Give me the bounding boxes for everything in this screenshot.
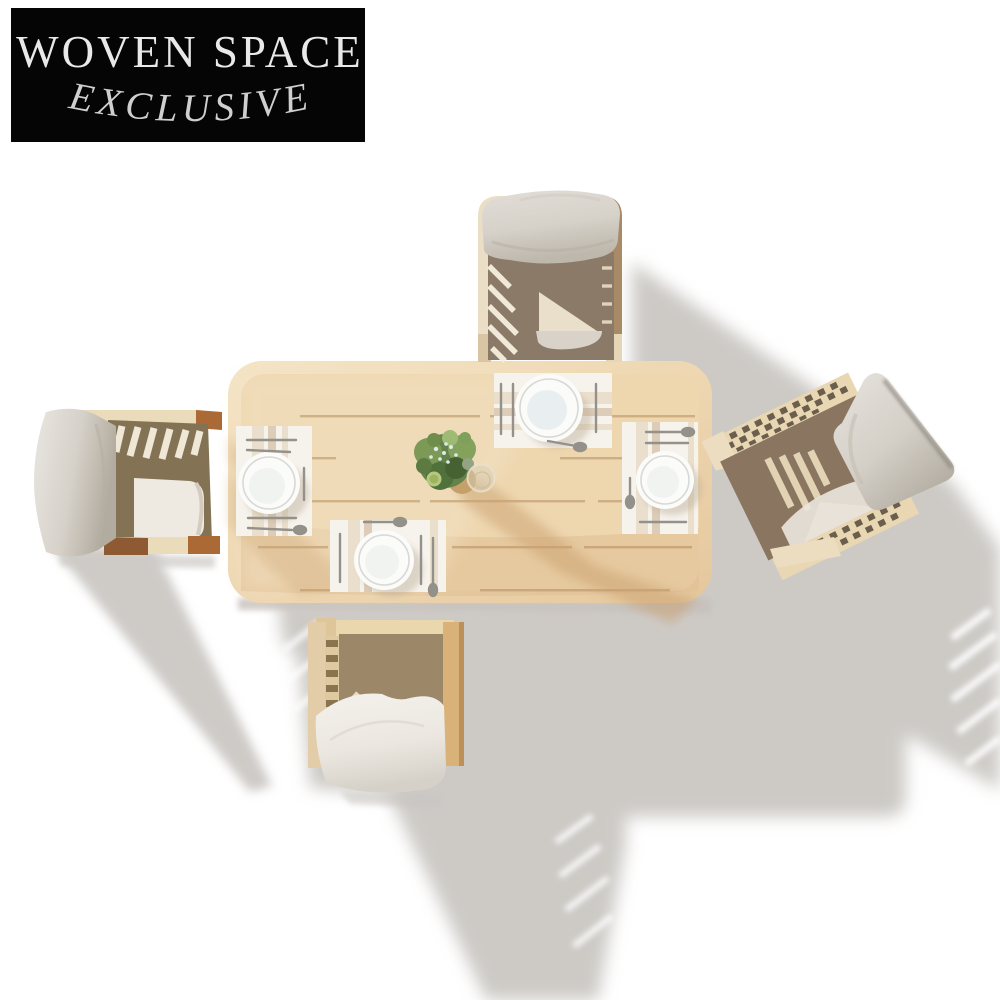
svg-text:WOVEN SPACE: WOVEN SPACE	[16, 27, 364, 77]
